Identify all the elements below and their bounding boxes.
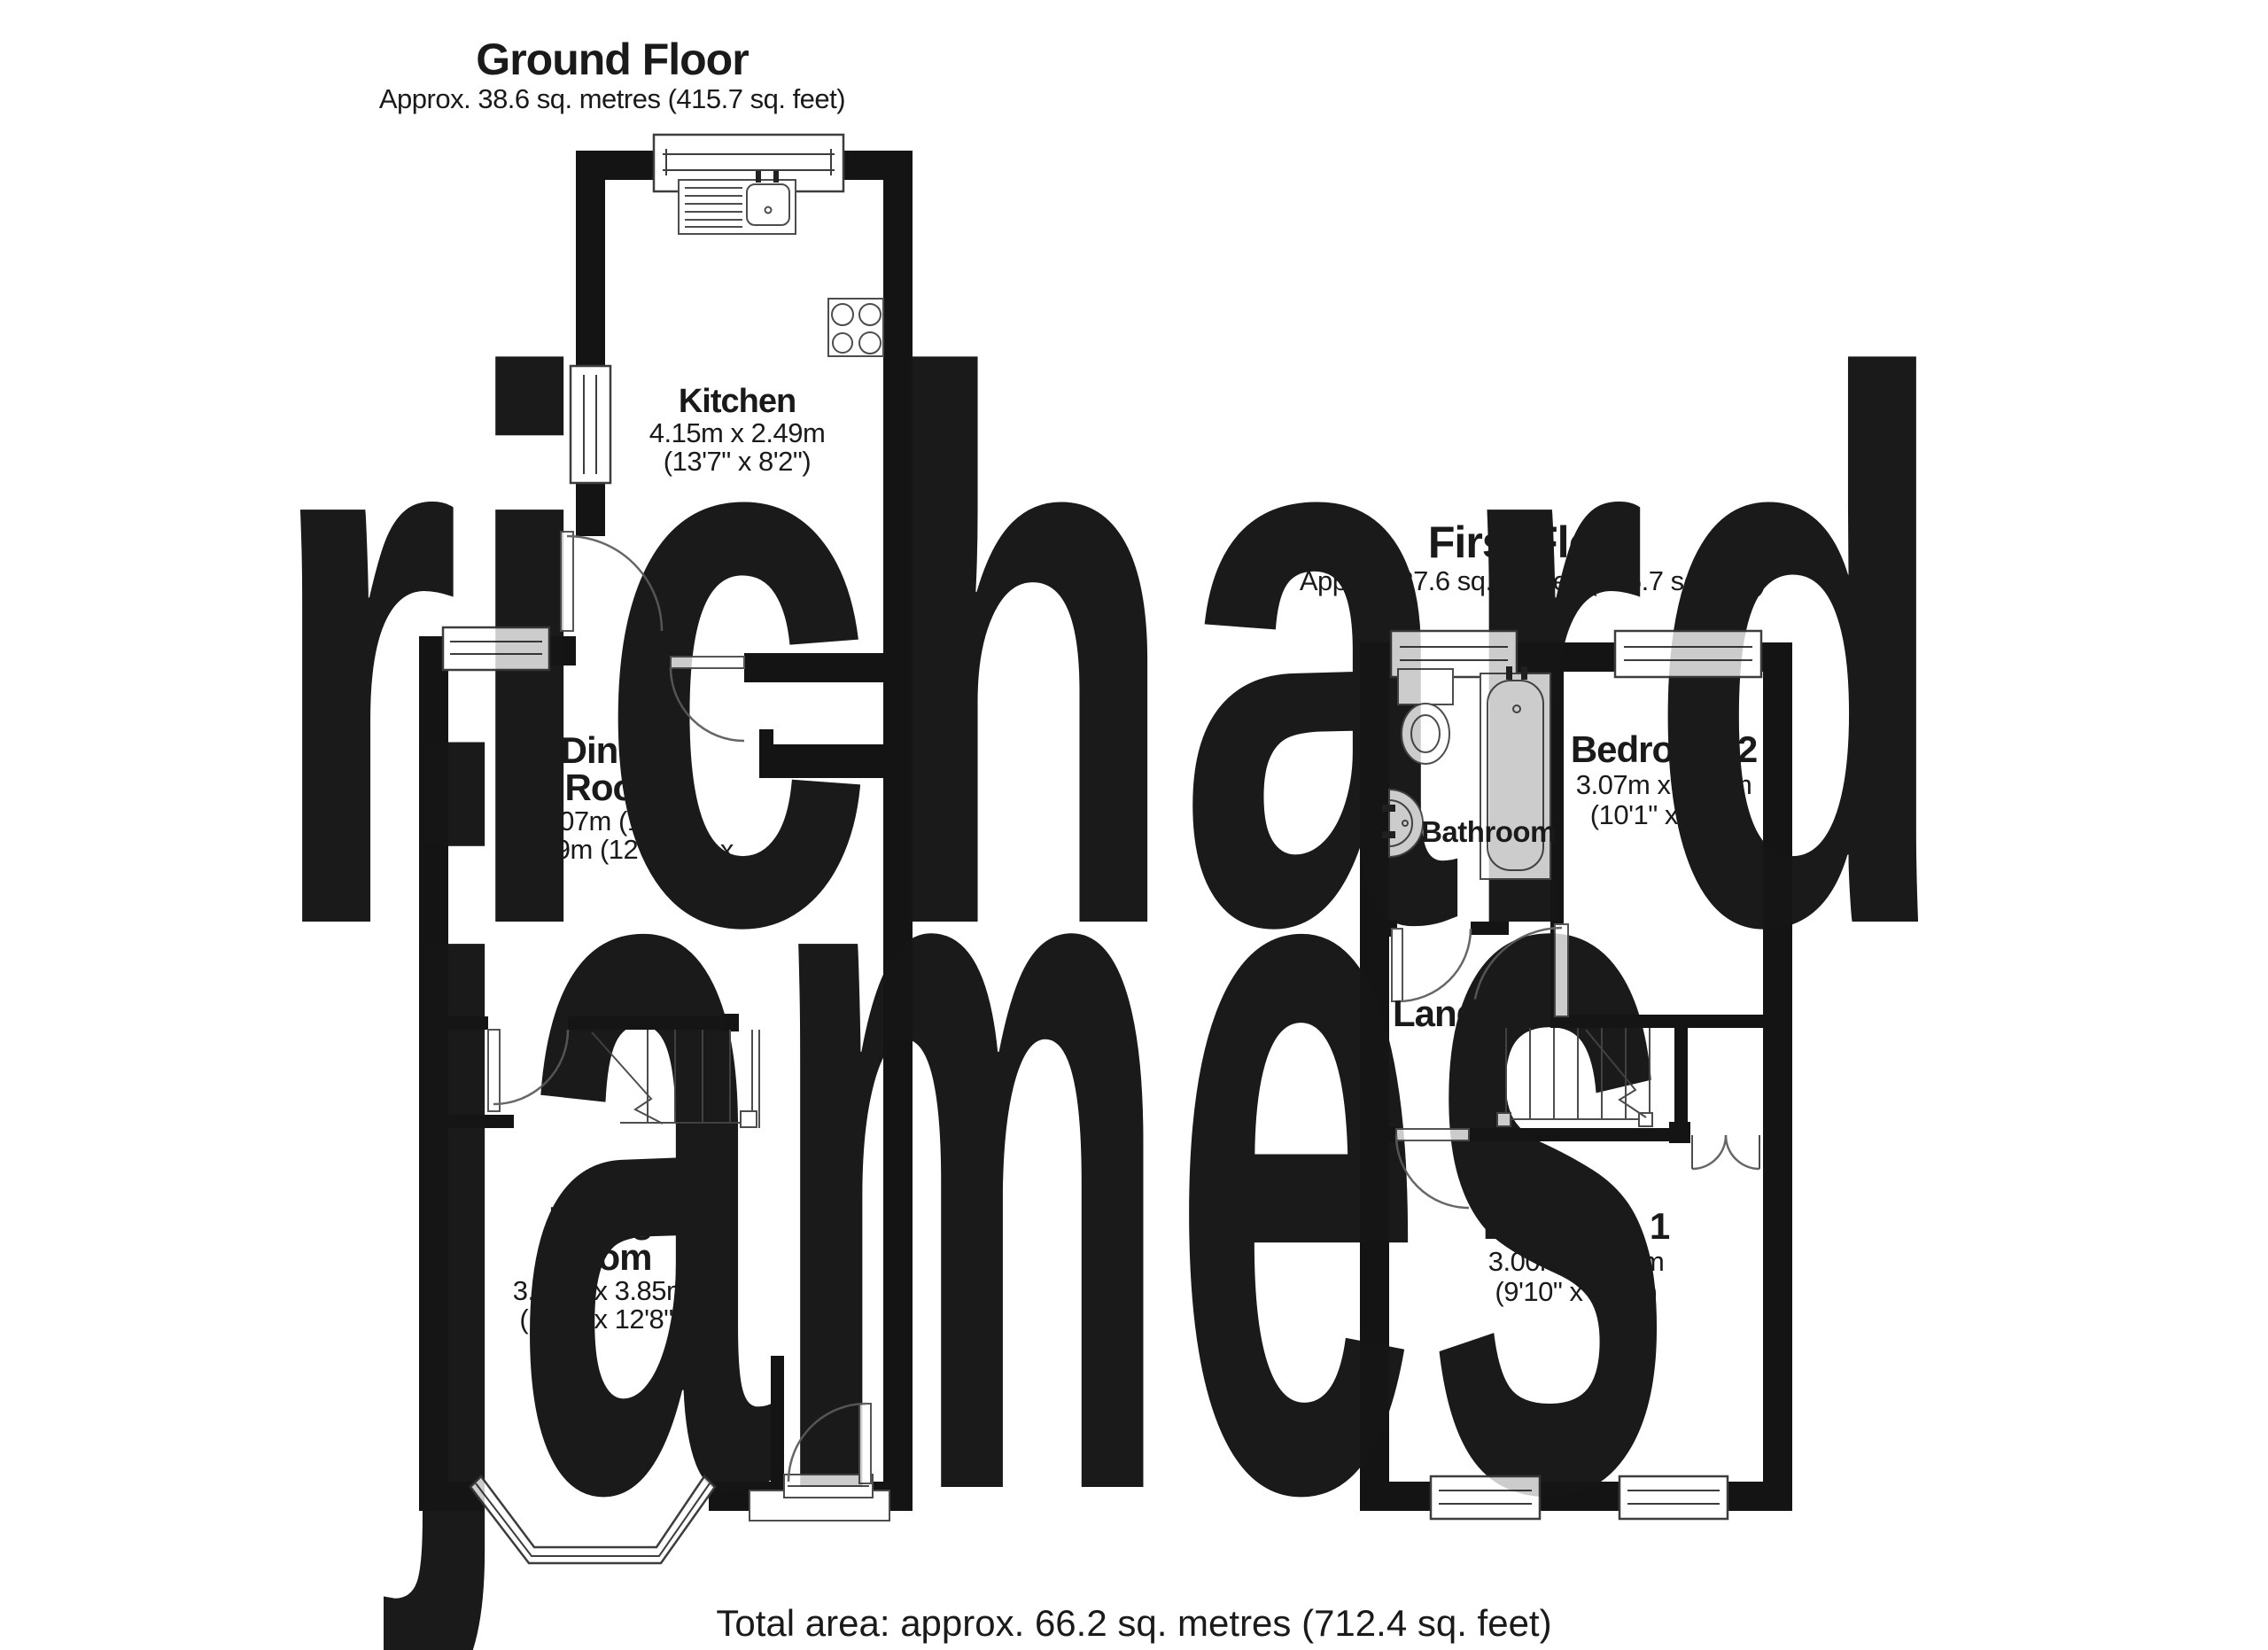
- ground-floor-title: Ground Floor: [476, 35, 749, 84]
- watermark-overlay: richard james: [268, 216, 1951, 1650]
- watermark-overlay-line2: james: [384, 556, 1675, 1650]
- tap-icon: [756, 171, 761, 183]
- tap-icon: [773, 171, 779, 183]
- floorplan-page: richard james: [0, 0, 2268, 1650]
- cupboard-double-doors: [1692, 1135, 1759, 1169]
- ground-floor-subtitle: Approx. 38.6 sq. metres (415.7 sq. feet): [379, 83, 845, 114]
- floorplan-canvas: richard james: [0, 0, 2268, 1650]
